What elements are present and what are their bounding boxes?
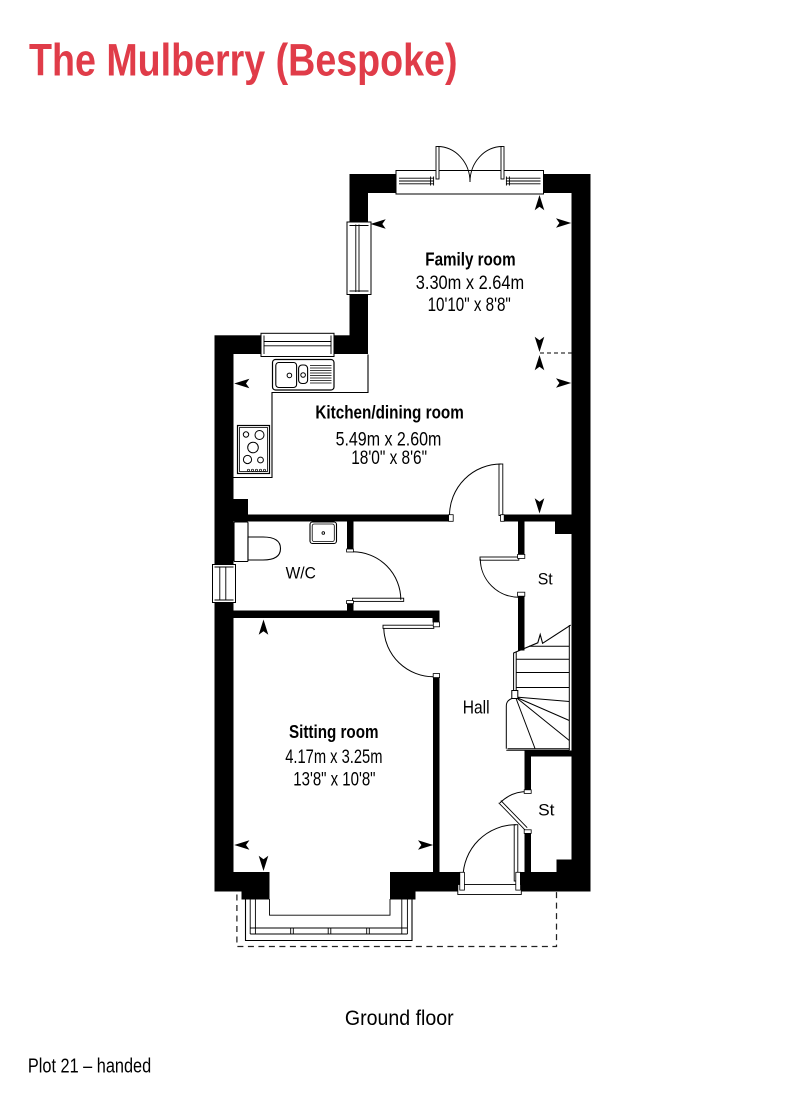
svg-text:The Mulberry (Bespoke): The Mulberry (Bespoke) [29,35,458,86]
svg-text:4.17m x 3.25m: 4.17m x 3.25m [285,747,382,768]
svg-text:13'8" x 10'8": 13'8" x 10'8" [293,770,375,791]
svg-text:10'10" x 8'8": 10'10" x 8'8" [428,295,511,316]
svg-text:Plot 21 – handed: Plot 21 – handed [28,1056,151,1078]
svg-text:3.30m x 2.64m: 3.30m x 2.64m [416,273,524,294]
svg-text:Family room: Family room [425,250,515,270]
svg-text:St: St [538,802,555,820]
svg-text:Ground floor: Ground floor [345,1006,454,1030]
svg-text:W/C: W/C [286,565,316,583]
svg-text:Kitchen/dining room: Kitchen/dining room [315,403,463,423]
svg-text:18'0" x 8'6": 18'0" x 8'6" [351,448,427,469]
svg-text:St: St [538,571,553,589]
svg-text:Hall: Hall [463,698,490,718]
svg-text:Sitting room: Sitting room [289,722,379,742]
